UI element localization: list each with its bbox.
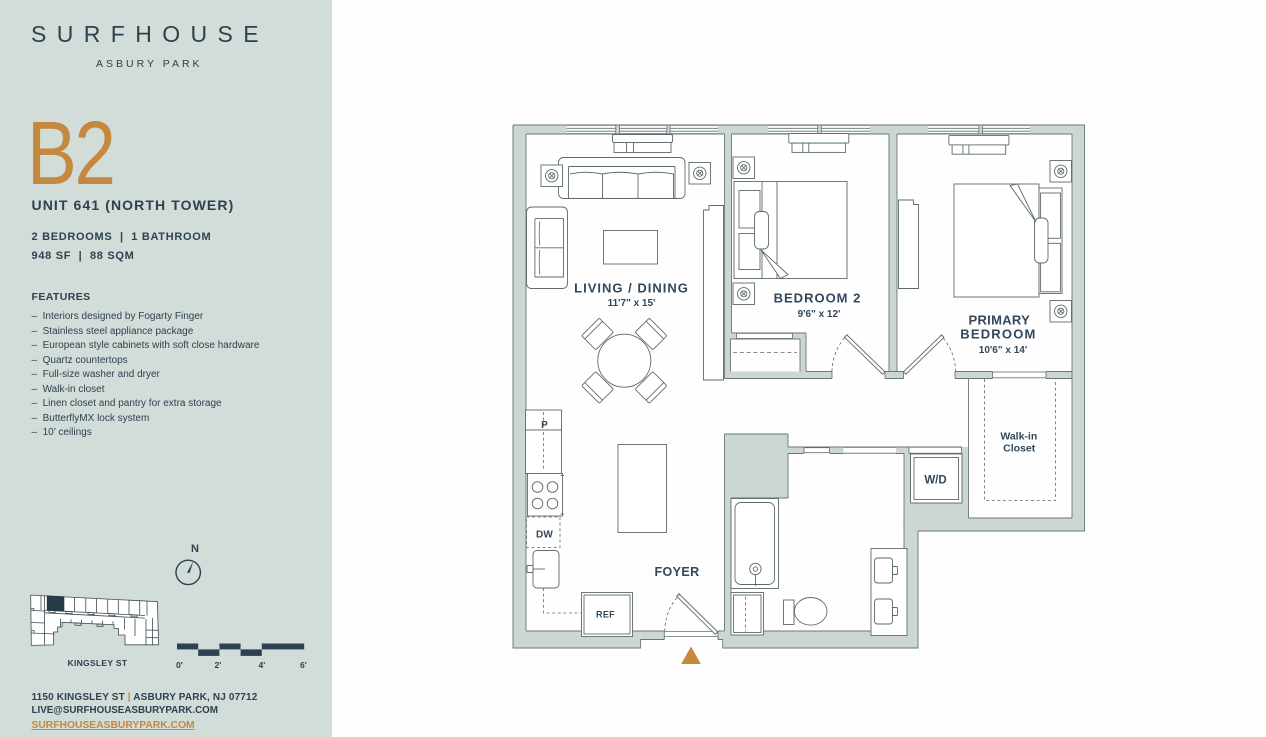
svg-text:11'7" x 15': 11'7" x 15' <box>608 298 656 309</box>
svg-text:Walk-in: Walk-in <box>1000 431 1037 443</box>
svg-text:BEDROOM: BEDROOM <box>960 326 1036 341</box>
svg-text:FOYER: FOYER <box>654 565 699 579</box>
svg-text:DW: DW <box>536 530 553 541</box>
svg-text:BEDROOM 2: BEDROOM 2 <box>774 291 862 306</box>
svg-text:P: P <box>541 420 548 431</box>
svg-text:W/D: W/D <box>924 475 946 487</box>
svg-text:9'6" x 12': 9'6" x 12' <box>798 309 841 320</box>
svg-text:Closet: Closet <box>1003 443 1036 455</box>
svg-text:PRIMARY: PRIMARY <box>969 312 1031 327</box>
svg-text:10'6" x 14': 10'6" x 14' <box>979 345 1027 356</box>
svg-text:REF: REF <box>596 610 615 620</box>
svg-text:LIVING / DINING: LIVING / DINING <box>574 281 689 296</box>
